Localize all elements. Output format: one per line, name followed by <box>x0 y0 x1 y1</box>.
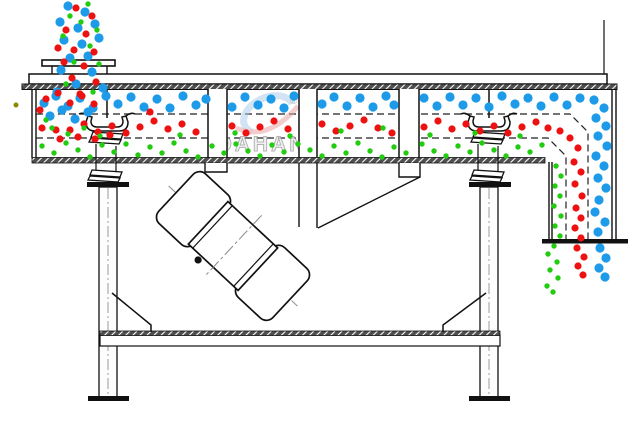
box-bottom-plate <box>32 158 545 164</box>
partition-2 <box>299 89 317 158</box>
spring-seat-cup <box>86 116 128 131</box>
screen-box-top <box>22 20 617 90</box>
bracket-diagonal <box>318 177 420 228</box>
left-leg <box>99 187 117 399</box>
spring-base-plate <box>87 182 129 187</box>
feed-inlet <box>42 60 115 75</box>
foot-right <box>469 396 510 401</box>
crossbar <box>100 331 500 346</box>
right-leg <box>480 187 498 399</box>
partition-3 <box>399 89 419 158</box>
brace-left <box>112 293 151 332</box>
foot-left <box>88 396 129 401</box>
vibration-motor <box>140 155 326 336</box>
inlet-flange <box>42 60 115 66</box>
particles-stray_olive <box>14 103 19 108</box>
vibrating-screen-diagram: DAHAN ® <box>0 0 638 428</box>
screen-box-walls <box>32 89 616 239</box>
top-cover <box>29 74 607 84</box>
discharge-lip <box>542 239 628 244</box>
diagram-canvas: DAHAN ® <box>0 0 638 428</box>
discharge-channel <box>542 162 628 244</box>
top-rail <box>22 84 617 90</box>
braces <box>112 293 486 332</box>
bracket-right <box>399 163 420 177</box>
bracket-left <box>205 163 227 172</box>
watermark-brand: DAHAN <box>217 133 308 156</box>
